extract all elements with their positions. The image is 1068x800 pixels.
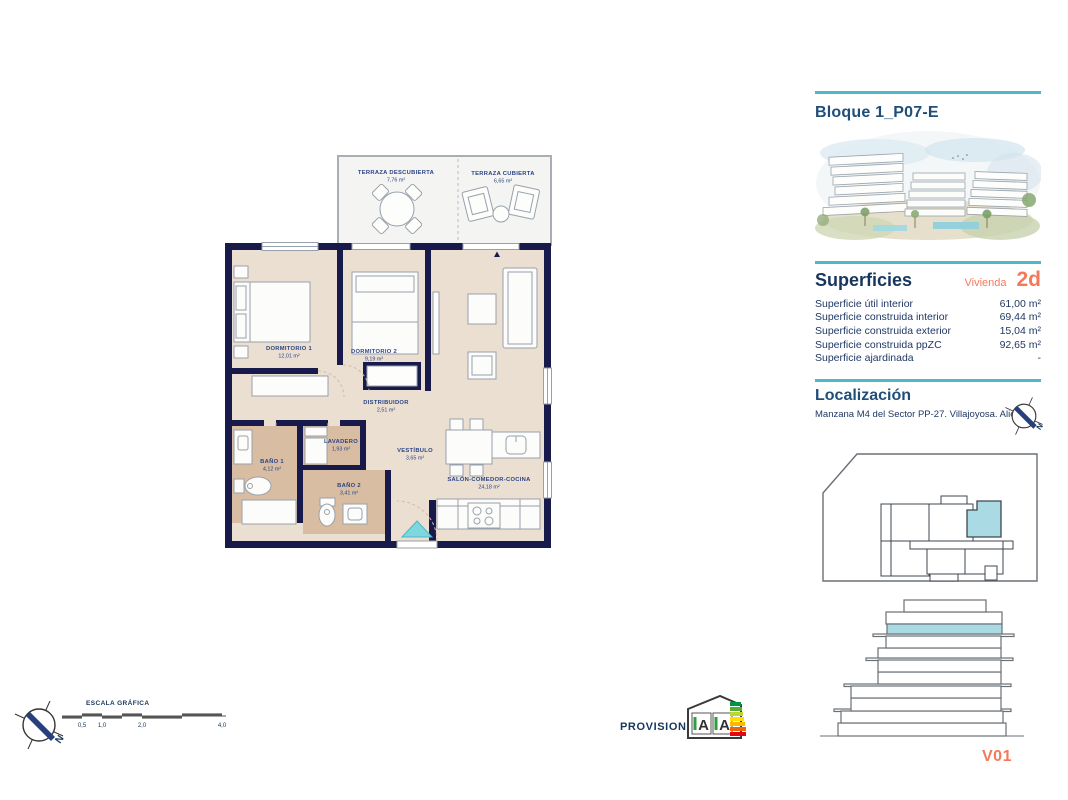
room-area: 4,12 m² [263,467,281,473]
room-label: DORMITORIO 1 [266,346,312,352]
room-area: 7,76 m² [387,178,405,184]
room-label: DORMITORIO 2 [351,349,397,355]
room-area: 2,51 m² [377,408,395,414]
room-label: VESTÍBULO [397,446,433,454]
divider-superficies [815,261,1041,264]
bedroom2-closet [367,366,417,386]
vivienda-label: Vivienda [964,277,1006,289]
superficies-heading: Superficies [815,270,964,291]
terrace-side-table [493,206,509,222]
laundry-appliances [305,427,327,464]
armchair [468,352,496,379]
row-label: Superficie construida ppZC [815,339,1000,351]
row-value: 61,00 m² [1000,298,1041,310]
scale-tick: 1,0 [98,723,107,729]
vivienda-value: 2d [1016,268,1041,292]
room-label: LAVADERO [324,439,358,445]
energy-rating-letter: A [698,717,709,734]
scale-tick: 4,0 [218,723,227,729]
room-label: SALÓN-COMEDOR-COCINA [447,475,531,483]
room-area: 12,01 m² [278,354,299,360]
kitchen-island [492,432,540,458]
version-label: V01 [982,748,1012,766]
row-value: 92,65 m² [1000,339,1041,351]
room-area: 9,19 m² [365,357,383,363]
scale-tick: 0,5 [78,723,87,729]
row-label: Superficie ajardinada [815,352,1038,364]
scale-bar: 0,5 1,0 2,0 4,0 [58,708,233,732]
table-row: Superficie ajardinada - [815,351,1041,365]
room-area: 3,65 m² [406,456,424,462]
energy-scale-bars [730,702,746,736]
table-row: Superficie construida exterior 15,04 m² [815,324,1041,338]
scale-tick: 2,0 [138,723,147,729]
tv-unit [433,292,439,354]
row-label: Superficie construida interior [815,311,1000,323]
table-row: Superficie construida ppZC 92,65 m² [815,338,1041,352]
localizacion-address: Manzana M4 del Sector PP-27. Villajoyosa… [815,409,1033,420]
terrace-armchair [508,185,540,220]
room-area: 24,18 m² [478,485,499,491]
energy-rating-letter: A [719,717,730,734]
table-row: Superficie útil interior 61,00 m² [815,297,1041,311]
building-elevation [818,598,1028,748]
room-label: DISTRIBUIDOR [363,400,409,406]
kitchen-counter [437,499,540,529]
row-value: 15,04 m² [1000,325,1041,337]
room-label: TERRAZA CUBIERTA [471,171,535,177]
plan-sheet: TERRAZA DESCUBIERTA TERRAZA CUBIERTA DOR… [0,0,1068,800]
room-area: 1,93 m² [332,447,350,453]
row-value: 69,44 m² [1000,311,1041,323]
room-area: 3,41 m² [340,491,358,497]
sofa [503,268,537,348]
bedroom1-closet [252,376,328,396]
row-label: Superficie útil interior [815,298,1000,310]
site-plan [815,446,1043,586]
compass-icon: N [1002,394,1046,438]
floor-plan: TERRAZA DESCUBIERTA TERRAZA CUBIERTA DOR… [210,148,560,560]
coffee-table [468,294,496,324]
building-render-image [815,128,1041,244]
room-area: 6,65 m² [494,179,512,185]
highlighted-floor [887,624,1002,634]
compass-north-label: N [53,733,66,745]
localizacion-heading: Localización [815,387,911,405]
room-label: BAÑO 1 [260,458,284,465]
energy-certificate-icon: A A [684,693,746,743]
page-title: Bloque 1_P07-E [815,104,939,122]
bedroom2-bed [352,272,418,354]
room-label: TERRAZA DESCUBIERTA [358,170,435,176]
row-label: Superficie construida exterior [815,325,1000,337]
table-row: Superficie construida interior 69,44 m² [815,311,1041,325]
divider-top [815,91,1041,94]
divider-localizacion [815,379,1041,382]
superficies-table: Superficie útil interior 61,00 m² Superf… [815,297,1041,365]
row-value: - [1038,352,1042,364]
scale-bar-title: ESCALA GRÁFICA [86,700,150,707]
room-label: BAÑO 2 [337,482,361,489]
